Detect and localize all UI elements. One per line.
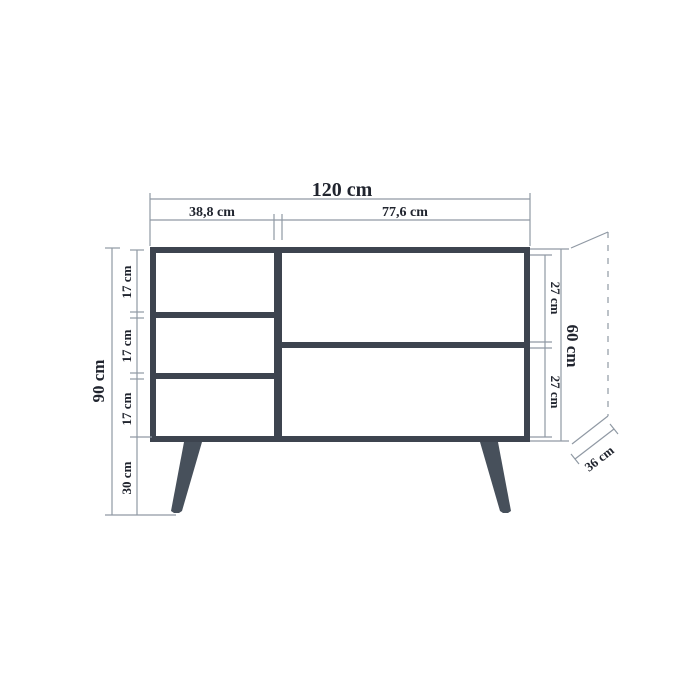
cabinet-left-panel [150, 247, 156, 442]
depth-edge-top [571, 232, 608, 248]
label-total-height: 90 cm [89, 360, 108, 403]
depth-edge-bottom [572, 416, 608, 444]
cabinet-legs [171, 442, 511, 513]
label-right-segment-1: 27 cm [548, 282, 563, 315]
tick-depth-right [610, 424, 618, 434]
cabinet-bottom-panel [150, 436, 530, 442]
label-left-segment-2: 17 cm [119, 329, 134, 362]
label-left-section-width: 38,8 cm [189, 205, 235, 220]
left-shelf-upper [156, 312, 274, 318]
right-shelf [282, 342, 524, 348]
tick-depth-left [571, 454, 579, 464]
right-leg [480, 442, 511, 513]
cabinet-center-divider [274, 253, 282, 436]
cabinet-body [150, 247, 530, 442]
label-depth: 36 cm [582, 442, 617, 474]
dimension-labels: 120 cm 38,8 cm 77,6 cm 90 cm 17 cm 17 cm… [89, 179, 617, 494]
label-leg-height: 30 cm [119, 461, 134, 494]
page-background: 120 cm 38,8 cm 77,6 cm 90 cm 17 cm 17 cm… [0, 0, 700, 700]
label-left-segment-3: 17 cm [119, 392, 134, 425]
cabinet-top-panel [150, 247, 530, 253]
label-right-section-width: 77,6 cm [382, 205, 428, 220]
left-leg [171, 442, 202, 513]
label-total-width: 120 cm [312, 179, 373, 201]
left-shelf-lower [156, 373, 274, 379]
furniture-dimension-diagram: 120 cm 38,8 cm 77,6 cm 90 cm 17 cm 17 cm… [0, 0, 700, 700]
label-right-segment-2: 27 cm [548, 376, 563, 409]
label-body-height: 60 cm [563, 325, 582, 368]
cabinet-right-panel [524, 247, 530, 442]
label-left-segment-1: 17 cm [119, 265, 134, 298]
